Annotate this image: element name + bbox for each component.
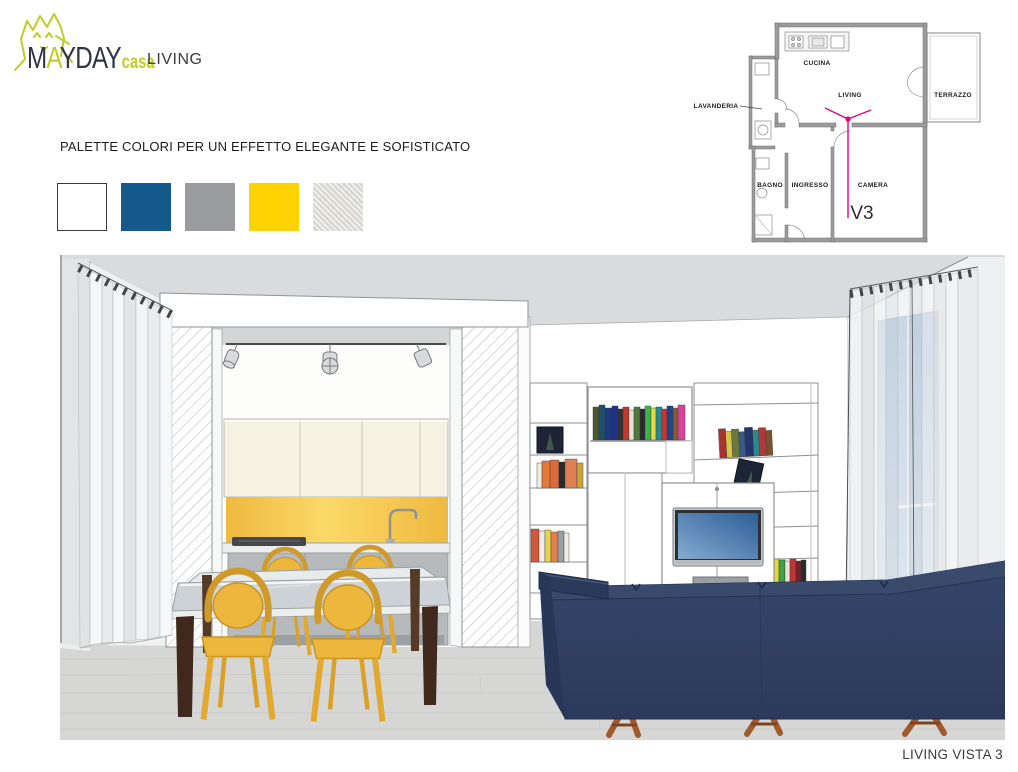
plan-walls — [749, 23, 927, 242]
books-left-bottom — [531, 529, 569, 562]
picture-frame-eiffel — [537, 427, 563, 453]
closed-cabinet — [588, 473, 662, 595]
brand-a: A — [46, 40, 60, 75]
brand-wordmark: MAYDAYcasa — [27, 40, 155, 76]
plan-label-camera: CAMERA — [858, 182, 888, 189]
swatch-white — [57, 183, 107, 231]
page-title: LIVING — [147, 51, 202, 69]
plan-kitchen-fixtures — [785, 32, 849, 51]
palette-swatches — [57, 183, 363, 231]
view-caption: LIVING VISTA 3 — [902, 747, 1003, 762]
living-room-render — [60, 255, 1005, 740]
plan-terrazzo — [927, 33, 980, 122]
plan-label-lavanderia: LAVANDERIA — [694, 103, 739, 110]
swatch-light-gray — [313, 183, 363, 231]
right-curtain — [846, 267, 978, 607]
books-top-shelf — [593, 405, 685, 440]
hanging-cabinet — [588, 387, 692, 473]
plan-label-bagno: BAGNO — [757, 182, 783, 189]
brand-rest: YDAY — [60, 40, 121, 75]
plan-label-cucina: CUCINA — [803, 60, 830, 67]
tv-panel — [662, 483, 774, 595]
brand-m: M — [27, 40, 46, 75]
palette-title: PALETTE COLORI PER UN EFFETTO ELEGANTE E… — [60, 139, 470, 154]
swatch-yellow — [249, 183, 299, 231]
plan-view-label: V3 — [850, 203, 873, 224]
plan-label-living: LIVING — [838, 92, 861, 99]
swatch-gray — [185, 183, 235, 231]
books-left-middle — [537, 459, 583, 488]
upper-cabinets — [224, 419, 448, 497]
hatched-pillar-right — [462, 327, 518, 647]
tv — [673, 508, 763, 566]
kitchen-side-face — [518, 317, 530, 647]
left-curtain — [78, 263, 173, 648]
plan-label-terrazzo: TERRAZZO — [934, 92, 972, 99]
floorplan: CUCINA LIVING TERRAZZO LAVANDERIA BAGNO … — [690, 3, 1018, 249]
brand-logo: MAYDAYcasa LIVING — [10, 4, 330, 84]
presentation-page: { "header": { "brand_part1": "M", "brand… — [0, 0, 1018, 772]
backsplash — [226, 497, 448, 543]
sofa — [539, 561, 1005, 735]
plan-label-ingresso: INGRESSO — [792, 182, 829, 189]
right-jamb — [450, 329, 462, 647]
swatch-blue — [121, 183, 171, 231]
hob — [232, 537, 306, 546]
